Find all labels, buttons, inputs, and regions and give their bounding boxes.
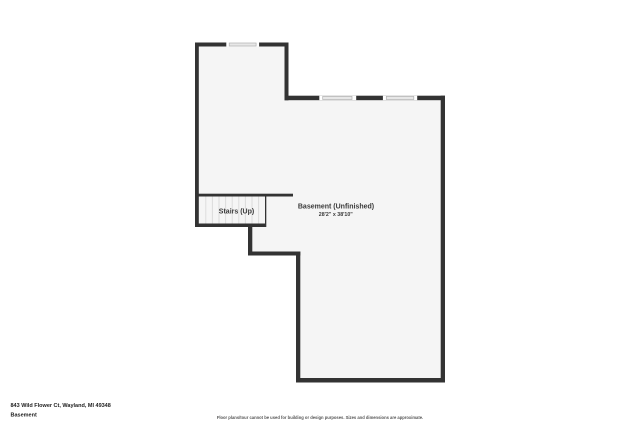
svg-text:Floor plans/tour cannot be use: Floor plans/tour cannot be used for buil… — [217, 415, 423, 420]
svg-text:Stairs (Up): Stairs (Up) — [219, 209, 254, 216]
svg-text:843 Wild Flower Ct, Wayland, M: 843 Wild Flower Ct, Wayland, MI 49348 — [11, 403, 111, 409]
svg-text:Basement: Basement — [11, 412, 37, 418]
svg-text:28'2" x 38'10": 28'2" x 38'10" — [319, 212, 354, 218]
svg-text:Basement (Unfinished): Basement (Unfinished) — [298, 203, 374, 210]
